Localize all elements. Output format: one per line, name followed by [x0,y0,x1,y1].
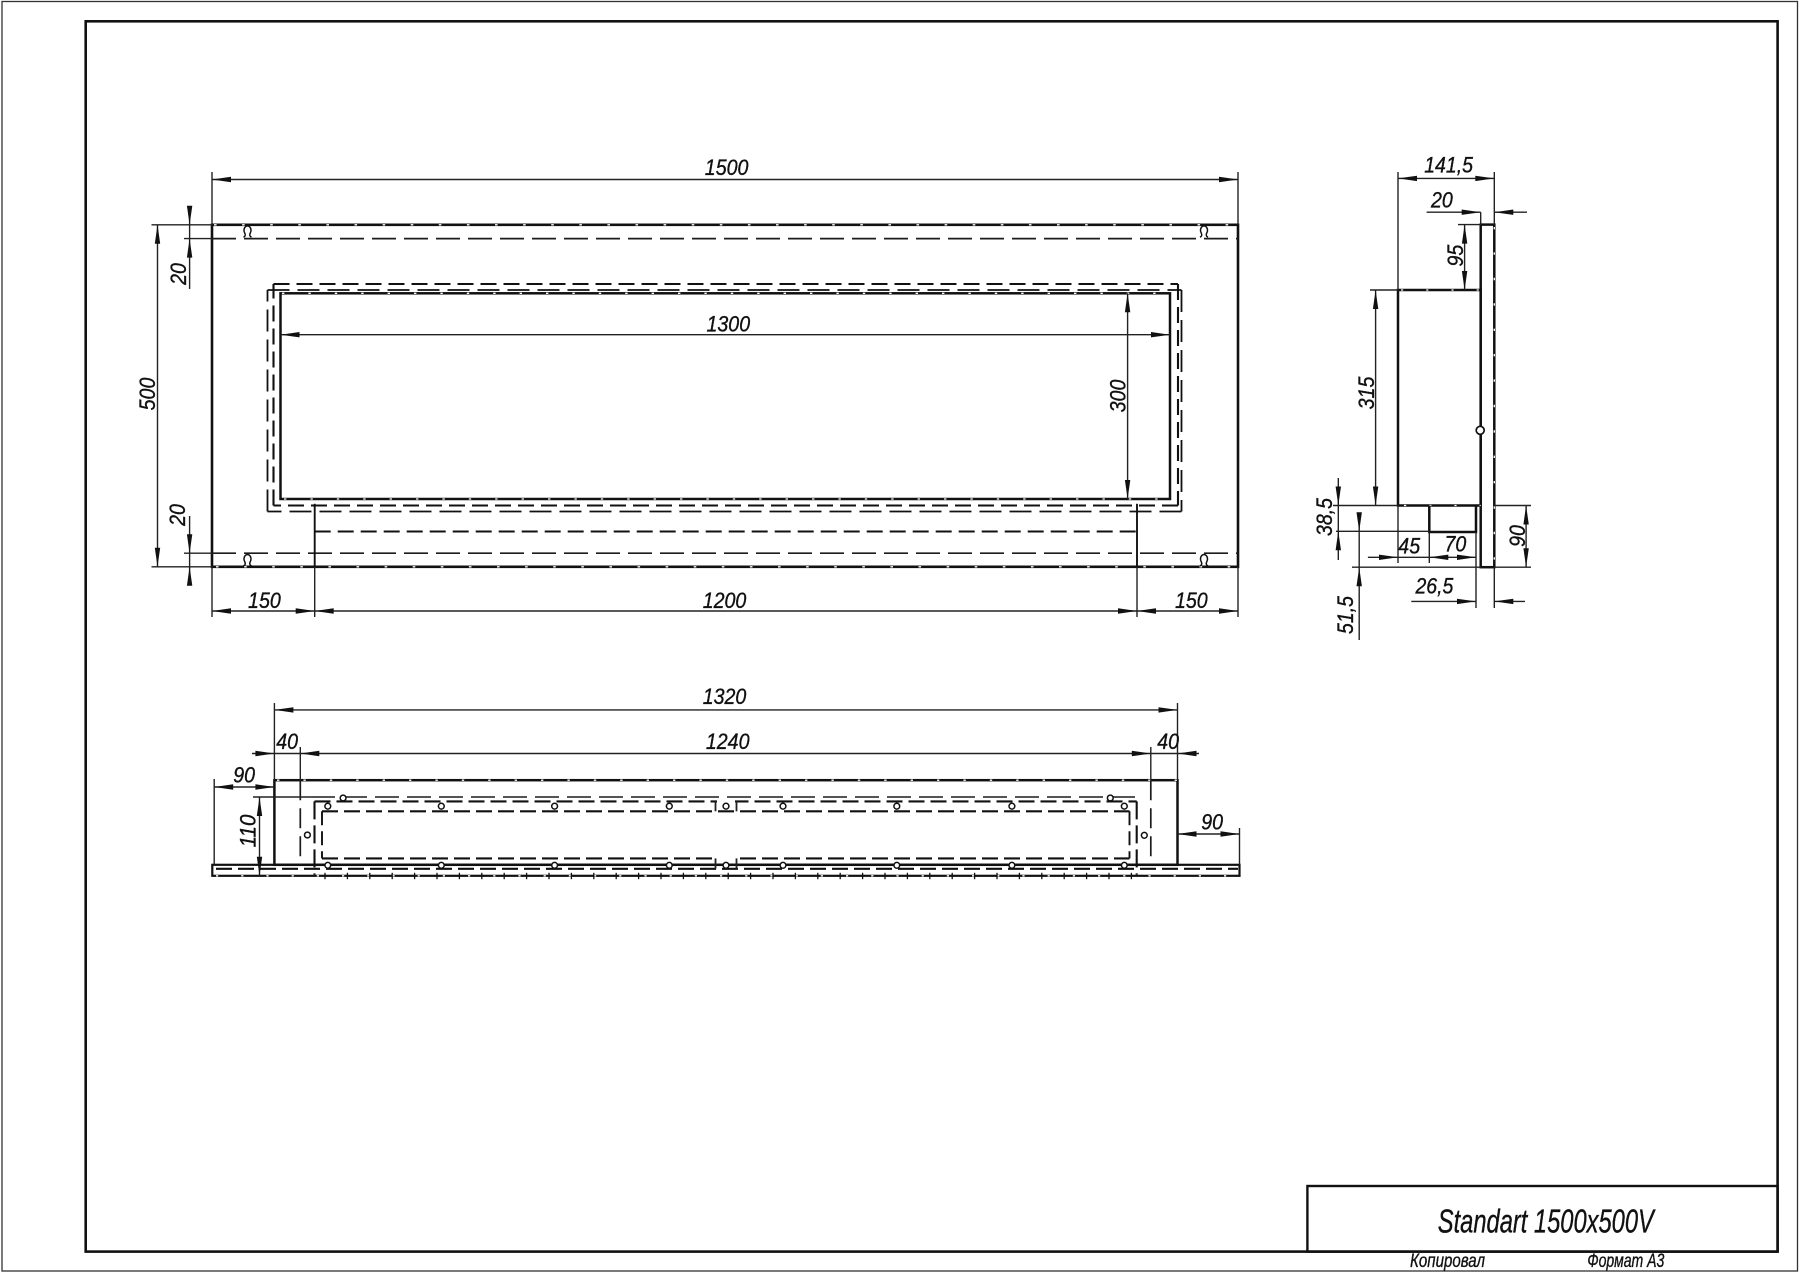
svg-text:26,5: 26,5 [1415,574,1454,599]
svg-text:1300: 1300 [707,311,751,336]
svg-text:51,5: 51,5 [1333,595,1358,634]
svg-text:90: 90 [1201,810,1223,835]
svg-text:1500: 1500 [705,155,749,180]
svg-text:1240: 1240 [706,729,750,754]
svg-text:300: 300 [1106,379,1131,412]
svg-text:90: 90 [233,763,255,788]
svg-text:150: 150 [248,588,281,613]
svg-text:90: 90 [1505,524,1530,546]
svg-text:150: 150 [1175,588,1208,613]
svg-text:20: 20 [165,503,190,526]
svg-text:1320: 1320 [703,684,747,709]
svg-text:40: 40 [1157,729,1179,754]
svg-text:315: 315 [1354,376,1379,409]
svg-text:1200: 1200 [703,588,747,613]
svg-text:95: 95 [1443,244,1468,266]
svg-text:Standart 1500x500V: Standart 1500x500V [1438,1203,1656,1240]
svg-text:500: 500 [135,377,160,410]
svg-text:20: 20 [1430,188,1453,213]
svg-text:20: 20 [166,262,191,285]
svg-text:Формат А3: Формат А3 [1587,1251,1664,1272]
svg-text:141,5: 141,5 [1424,152,1473,177]
svg-text:38,5: 38,5 [1312,497,1337,536]
svg-text:110: 110 [236,814,261,847]
svg-text:Копировал: Копировал [1410,1251,1485,1272]
svg-text:70: 70 [1445,532,1467,557]
svg-text:45: 45 [1398,534,1420,559]
svg-text:40: 40 [276,729,298,754]
